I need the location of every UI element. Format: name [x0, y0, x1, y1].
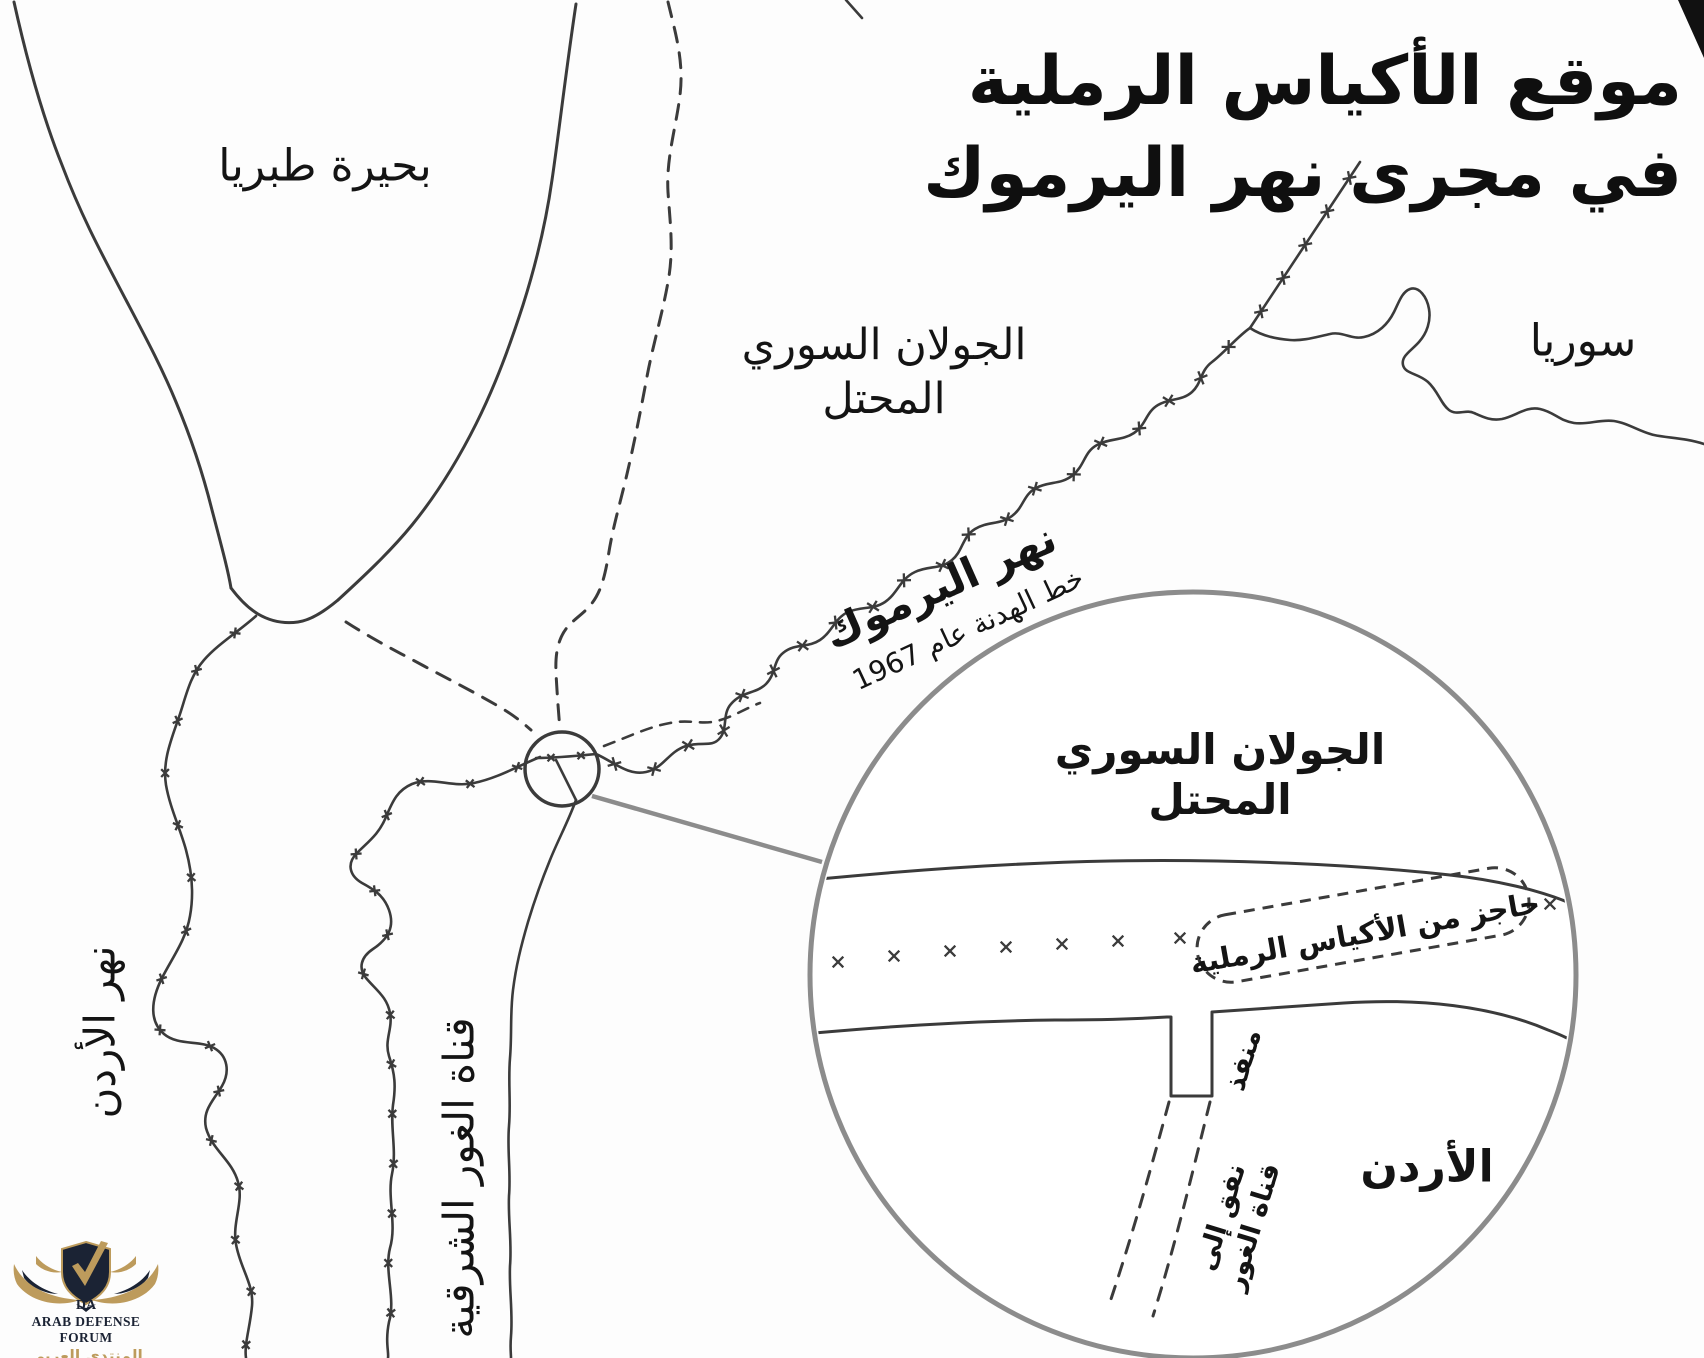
canal-upper-segment [556, 760, 576, 800]
logo-name-ar: المنتدى العربي للدفاع والتسليح [10, 1347, 162, 1358]
page-title: موقع الأكياس الرملية في مجرى نهر اليرموك [923, 36, 1682, 220]
label-east-ghor-canal: قناة الغور الشرقية [435, 1017, 484, 1338]
jordan-river-path [153, 616, 256, 1358]
inset-label-golan: الجولان السوري المحتل [1055, 725, 1385, 825]
infographic-map: موقع الأكياس الرملية في مجرى نهر اليرموك… [0, 0, 1704, 1358]
top-edge-tick [846, 0, 862, 18]
label-lake-tiberias: بحيرة طبريا [218, 141, 431, 192]
logo-name-en: ARAB DEFENSE FORUM [10, 1314, 162, 1346]
armistice-diagonal-dashed [346, 622, 531, 730]
label-golan-line2: المحتل [742, 372, 1027, 426]
confluence-cross-segment [536, 754, 596, 758]
forum-logo-emblem: DA [10, 1238, 162, 1312]
lake-south-shore [231, 588, 338, 623]
magnifier-pointer-line [592, 796, 822, 862]
confluence-highlight-circle [525, 732, 599, 806]
label-jordan-river: نهر الأردن [76, 945, 125, 1118]
inset-label-jordan-country: الأردن [1360, 1142, 1493, 1193]
label-golan-line1: الجولان السوري [742, 318, 1027, 372]
armistice-dashed-border [556, 2, 681, 730]
label-syria: سوريا [1530, 316, 1637, 367]
page-title-line2: في مجرى نهر اليرموك [923, 128, 1682, 220]
page-title-line1: موقع الأكياس الرملية [923, 36, 1682, 128]
east-ghor-canal-path [508, 800, 576, 1358]
label-golan: الجولان السوري المحتل [742, 318, 1027, 426]
logo-monogram: DA [76, 1298, 97, 1312]
armistice-along-river-dashed [604, 703, 760, 746]
west-coastline [14, 2, 231, 588]
lake-east-shore [338, 4, 576, 600]
inset-label-golan-line1: الجولان السوري [1055, 725, 1385, 775]
inset-label-golan-line2: المحتل [1055, 775, 1385, 825]
forum-logo: DA ARAB DEFENSE FORUM المنتدى العربي للد… [10, 1238, 162, 1358]
